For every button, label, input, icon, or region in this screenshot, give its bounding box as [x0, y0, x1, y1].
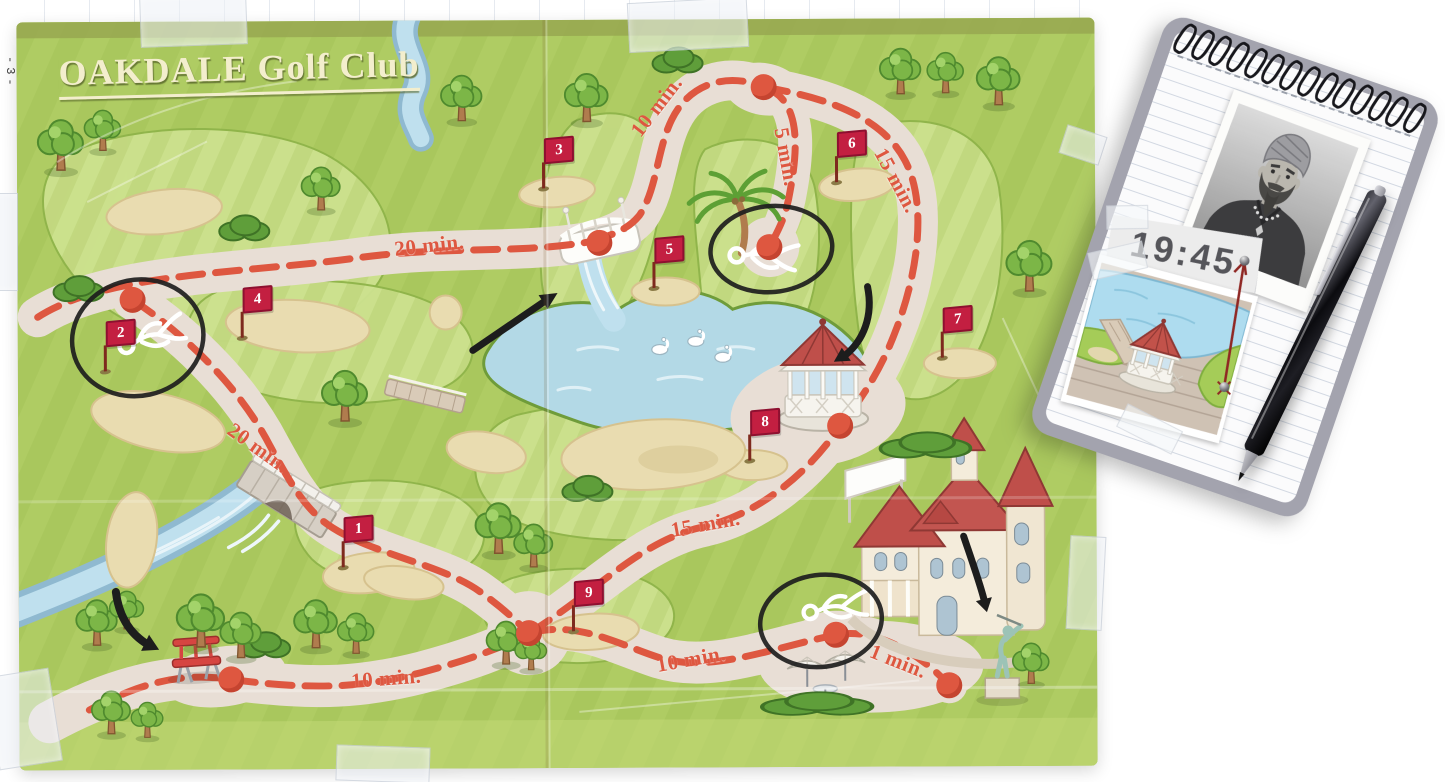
- flag-number: 7: [954, 311, 962, 327]
- flag-marker-5[interactable]: 5: [654, 235, 684, 264]
- page-number-marker: -3-: [3, 56, 17, 90]
- route-node[interactable]: [823, 622, 849, 648]
- flag-number: 6: [848, 136, 856, 152]
- tape-strip: [335, 744, 430, 782]
- flag-number: 5: [666, 242, 674, 258]
- flag-number: 3: [555, 142, 563, 158]
- route-node[interactable]: [751, 74, 777, 100]
- flag-number: 4: [254, 291, 262, 307]
- tape-strip: [1106, 205, 1148, 230]
- flag-number: 9: [585, 585, 593, 601]
- flag-marker-2[interactable]: 2: [106, 319, 136, 348]
- route-node[interactable]: [218, 666, 244, 692]
- map-title: OAKDALE Golf Club: [58, 43, 420, 100]
- route-node[interactable]: [120, 287, 146, 313]
- route-node[interactable]: [936, 672, 962, 698]
- flag-marker-6[interactable]: 6: [837, 129, 867, 158]
- map-illustration: [16, 18, 1097, 771]
- flag-number: 1: [355, 521, 363, 537]
- route-node[interactable]: [827, 413, 853, 439]
- flag-marker-8[interactable]: 8: [750, 408, 780, 437]
- flag-marker-9[interactable]: 9: [574, 578, 604, 607]
- route-node[interactable]: [756, 234, 782, 260]
- time-label: 10 min.: [350, 664, 422, 694]
- tape-strip: [627, 0, 749, 53]
- flag-marker-3[interactable]: 3: [544, 136, 574, 165]
- flag-marker-1[interactable]: 1: [344, 514, 374, 543]
- route-node[interactable]: [586, 230, 612, 256]
- tape-strip: [1066, 535, 1107, 631]
- golf-course-map: OAKDALE Golf Club 1 2 3 4 5 6 7 8 9 20 m…: [16, 18, 1097, 771]
- flag-marker-4[interactable]: 4: [243, 285, 273, 314]
- route-node[interactable]: [516, 620, 542, 646]
- photographed-game-scene: -3-: [0, 0, 1445, 782]
- tape-strip: [139, 0, 248, 48]
- flag-number: 8: [761, 414, 769, 430]
- map-bottom-band: [19, 718, 1097, 771]
- tape-strip: [0, 193, 18, 291]
- flag-marker-7[interactable]: 7: [943, 305, 973, 334]
- flag-number: 2: [117, 325, 125, 341]
